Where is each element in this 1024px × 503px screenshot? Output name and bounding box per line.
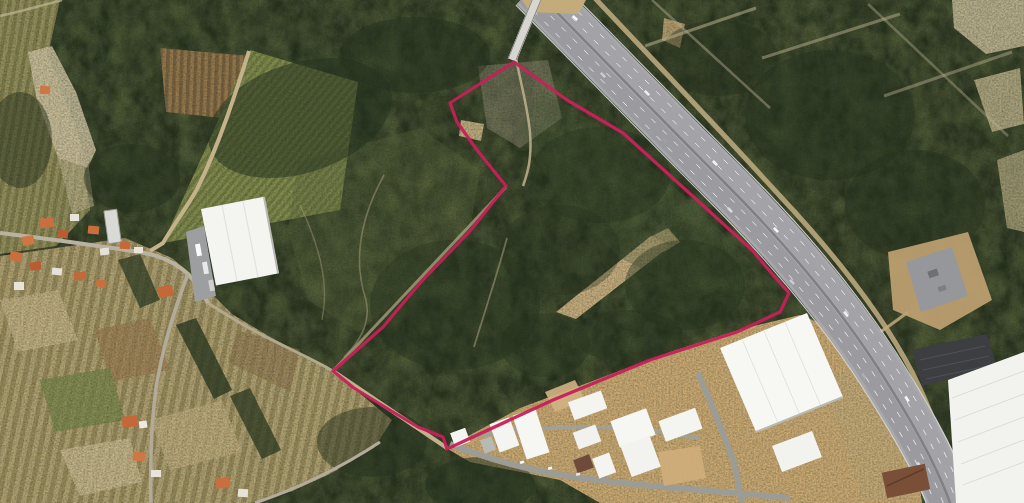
house bbox=[52, 267, 63, 275]
house bbox=[40, 217, 55, 228]
farmhouse bbox=[139, 420, 148, 428]
house bbox=[100, 247, 110, 255]
satellite-map[interactable] bbox=[0, 0, 1024, 503]
house bbox=[57, 229, 68, 238]
house bbox=[40, 85, 51, 94]
farmhouse bbox=[133, 451, 146, 461]
satellite-scene bbox=[0, 0, 1024, 503]
house bbox=[74, 272, 87, 281]
house bbox=[70, 214, 79, 221]
house bbox=[120, 242, 130, 250]
farmhouse bbox=[216, 477, 231, 488]
house bbox=[95, 279, 106, 287]
farmhouse bbox=[238, 489, 249, 498]
house bbox=[88, 226, 100, 235]
house bbox=[134, 247, 143, 253]
farmhouse bbox=[151, 470, 161, 477]
house bbox=[29, 261, 41, 270]
house bbox=[14, 282, 24, 290]
farmhouse bbox=[121, 415, 138, 428]
